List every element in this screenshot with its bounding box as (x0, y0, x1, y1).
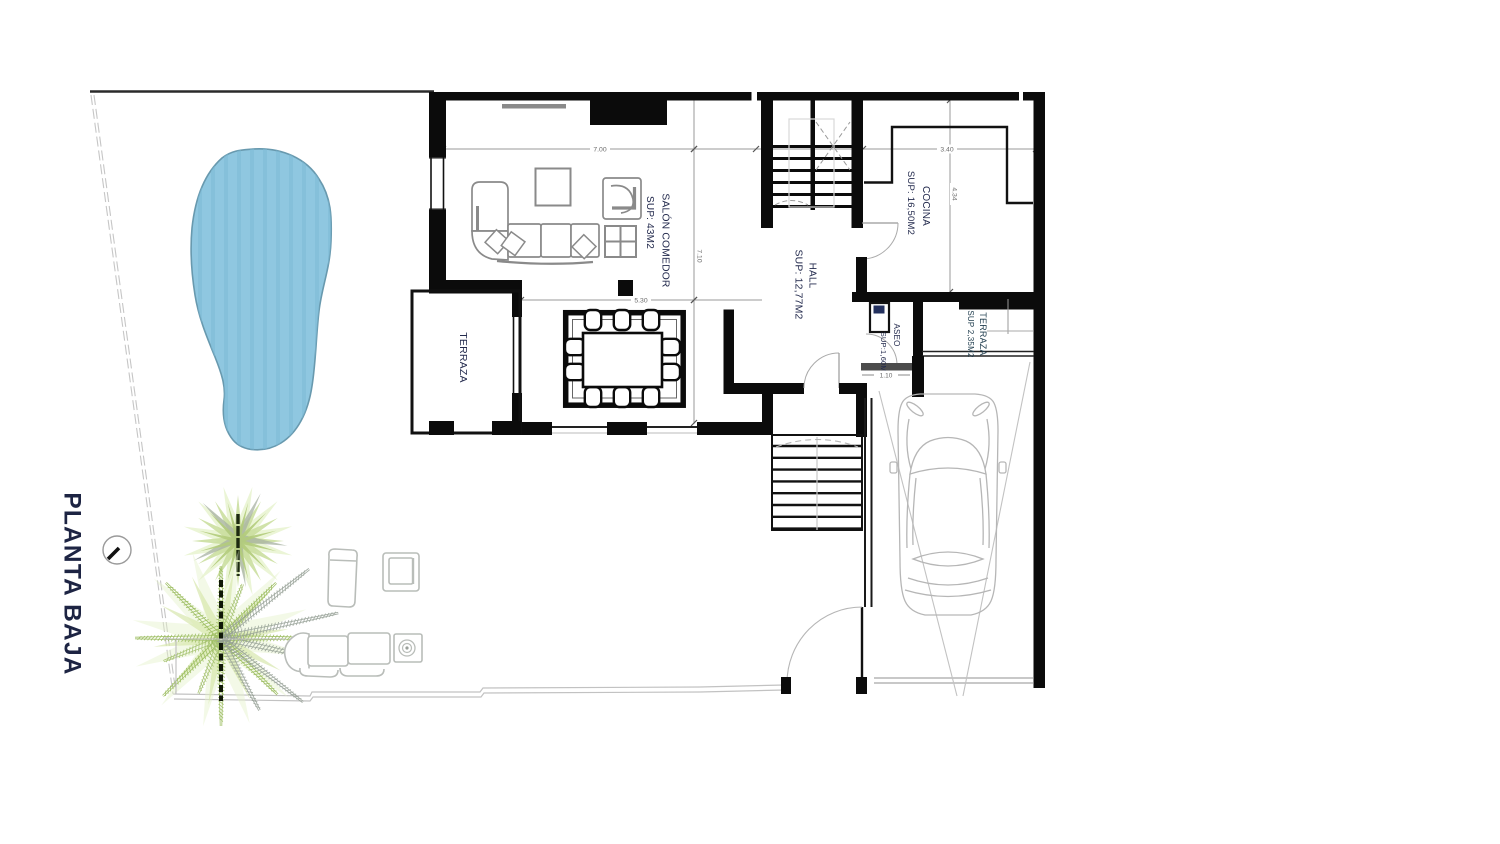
svg-text:SUP 2,35M2: SUP 2,35M2 (966, 310, 975, 358)
svg-text:PLANTA BAJA: PLANTA BAJA (59, 492, 86, 675)
svg-text:TERRAZA: TERRAZA (457, 332, 469, 382)
svg-text:ASEO: ASEO (892, 323, 901, 346)
svg-text:TERRAZA: TERRAZA (978, 312, 988, 355)
svg-text:HALL: HALL (806, 263, 817, 289)
svg-text:SALÓN COMEDOR: SALÓN COMEDOR (660, 193, 673, 287)
svg-text:COCINA: COCINA (920, 186, 931, 226)
svg-text:SUP: 12,77M2: SUP: 12,77M2 (792, 250, 803, 320)
svg-text:7.00: 7.00 (593, 146, 606, 153)
svg-text:SUP:1,60M2: SUP:1,60M2 (879, 332, 888, 377)
svg-text:3.40: 3.40 (940, 146, 953, 153)
svg-text:7.10: 7.10 (696, 249, 703, 262)
svg-text:SUP: 43M2: SUP: 43M2 (644, 196, 655, 249)
svg-text:5.30: 5.30 (634, 297, 647, 304)
svg-text:4.34: 4.34 (951, 187, 958, 200)
svg-text:SUP: 16,50M2: SUP: 16,50M2 (905, 171, 916, 235)
svg-text:1.10: 1.10 (880, 372, 893, 379)
